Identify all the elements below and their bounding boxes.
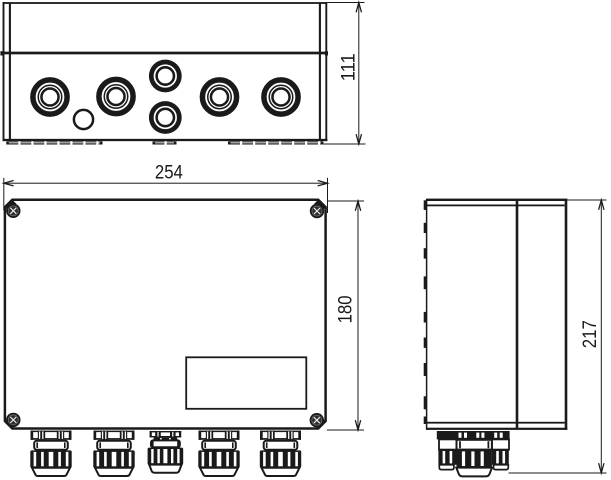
svg-text:217: 217 [580, 320, 601, 348]
svg-text:254: 254 [155, 162, 183, 183]
svg-text:111: 111 [339, 53, 360, 81]
svg-text:180: 180 [335, 295, 356, 323]
